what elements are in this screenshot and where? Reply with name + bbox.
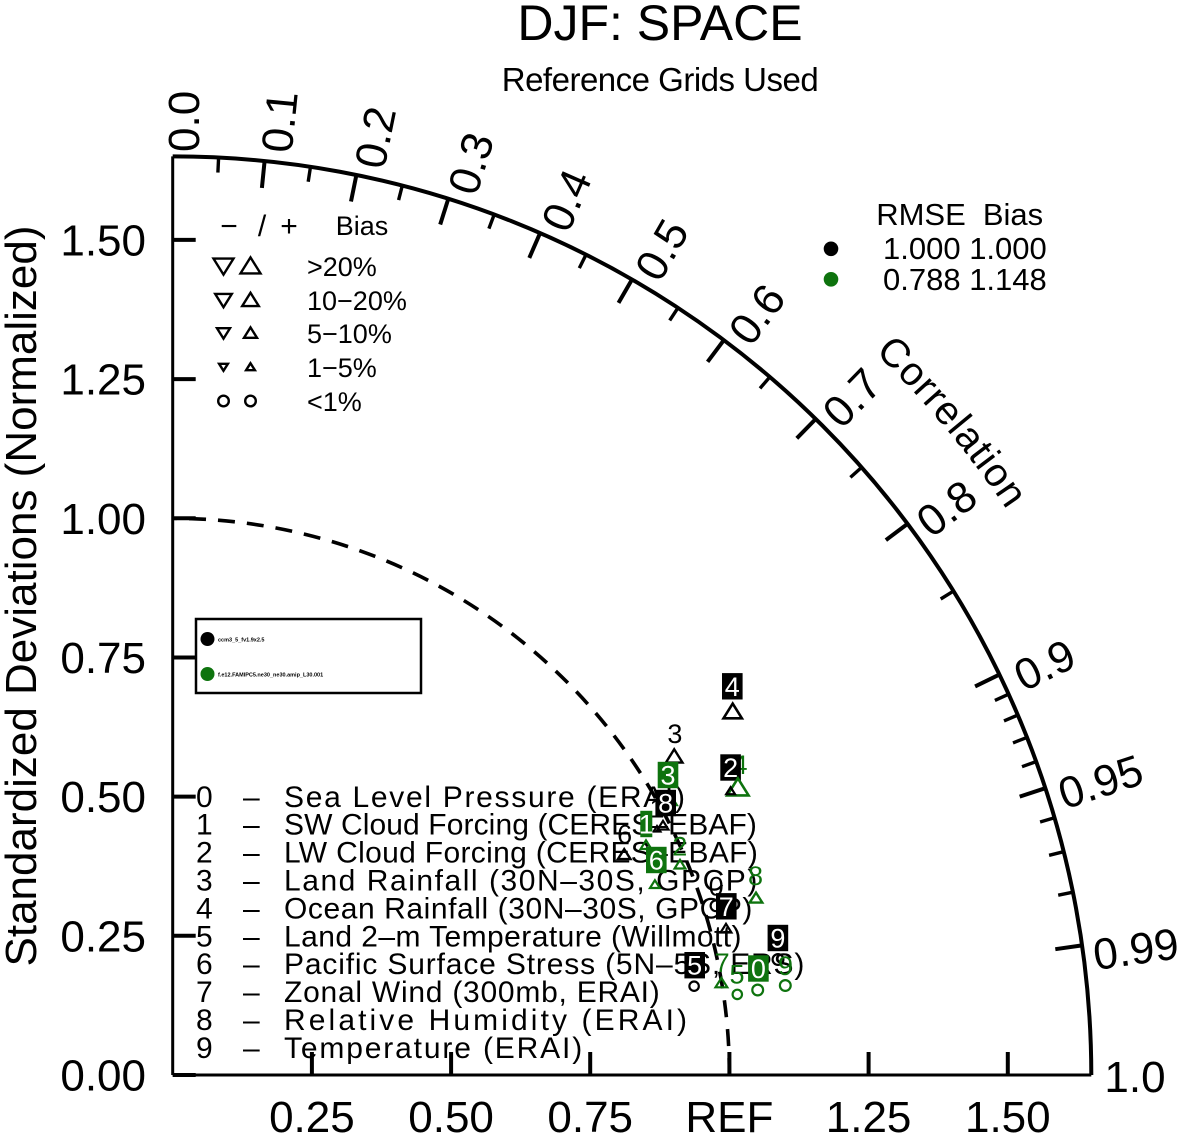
svg-text:>20%: >20% xyxy=(307,252,377,282)
svg-text:1.50: 1.50 xyxy=(965,1093,1051,1135)
svg-text:0.9: 0.9 xyxy=(1007,630,1083,701)
svg-text:Reference Grids Used: Reference Grids Used xyxy=(502,61,818,98)
svg-text:3: 3 xyxy=(660,761,675,791)
svg-text:9: 9 xyxy=(196,1032,213,1065)
svg-text:Standardized Deviations (Norma: Standardized Deviations (Normalized) xyxy=(0,226,46,967)
svg-text:0.0: 0.0 xyxy=(160,91,209,152)
svg-text:9: 9 xyxy=(778,951,793,981)
svg-text:5−10%: 5−10% xyxy=(307,319,392,349)
svg-text:–: – xyxy=(243,1032,260,1065)
svg-text:1.25: 1.25 xyxy=(826,1093,912,1135)
svg-text:Bias: Bias xyxy=(336,211,389,241)
svg-text:9: 9 xyxy=(770,924,785,954)
svg-text:1.000 1.000: 1.000 1.000 xyxy=(883,231,1047,266)
svg-text:2: 2 xyxy=(672,832,687,862)
svg-text:0.2: 0.2 xyxy=(346,103,406,173)
svg-text:Temperature (ERAI): Temperature (ERAI) xyxy=(284,1032,584,1065)
svg-text:3: 3 xyxy=(667,719,682,749)
svg-text:0: 0 xyxy=(751,954,766,984)
svg-text:0.00: 0.00 xyxy=(60,1052,146,1101)
svg-text:0.3: 0.3 xyxy=(439,127,504,200)
svg-text:2: 2 xyxy=(723,753,738,783)
svg-text:/: / xyxy=(258,210,267,243)
svg-text:4: 4 xyxy=(725,672,740,702)
svg-text:+: + xyxy=(280,210,298,243)
svg-text:0.99: 0.99 xyxy=(1090,919,1179,980)
svg-text:5: 5 xyxy=(687,951,702,981)
svg-text:1.0: 1.0 xyxy=(1104,1053,1165,1102)
svg-text:1.50: 1.50 xyxy=(60,216,146,265)
svg-text:<1%: <1% xyxy=(307,387,362,417)
svg-text:8: 8 xyxy=(748,861,763,891)
svg-text:0.7: 0.7 xyxy=(814,359,892,437)
svg-text:0.50: 0.50 xyxy=(60,773,146,822)
svg-text:7: 7 xyxy=(719,892,734,922)
svg-text:6: 6 xyxy=(617,820,632,850)
svg-text:0.95: 0.95 xyxy=(1052,746,1149,819)
svg-text:−: − xyxy=(220,210,238,243)
svg-text:0.1: 0.1 xyxy=(253,89,308,155)
svg-text:1−5%: 1−5% xyxy=(307,353,377,383)
svg-text:7: 7 xyxy=(715,948,730,978)
svg-text:0.5: 0.5 xyxy=(626,211,699,288)
svg-text:REF: REF xyxy=(685,1093,773,1135)
svg-text:1.25: 1.25 xyxy=(60,356,146,405)
svg-text:0.788 1.148: 0.788 1.148 xyxy=(883,262,1047,297)
svg-text:f.e12.FAMIPC5.ne30_ne30.amip_L: f.e12.FAMIPC5.ne30_ne30.amip_L30.001 xyxy=(218,673,323,679)
svg-text:8: 8 xyxy=(658,789,673,819)
svg-text:6: 6 xyxy=(649,846,664,876)
svg-text:RMSE: RMSE xyxy=(876,197,966,232)
svg-text:1.00: 1.00 xyxy=(60,495,146,544)
svg-text:0.4: 0.4 xyxy=(532,163,601,239)
svg-text:DJF: SPACE: DJF: SPACE xyxy=(517,0,802,51)
svg-text:10−20%: 10−20% xyxy=(307,286,407,316)
svg-text:Bias: Bias xyxy=(983,197,1043,232)
svg-text:ccm3_5_fv1.9x2.5: ccm3_5_fv1.9x2.5 xyxy=(218,638,264,644)
svg-text:0.75: 0.75 xyxy=(60,634,146,683)
svg-text:0.25: 0.25 xyxy=(269,1093,355,1135)
svg-text:0.50: 0.50 xyxy=(408,1093,494,1135)
svg-text:0.8: 0.8 xyxy=(908,471,986,547)
svg-text:0.25: 0.25 xyxy=(60,912,146,961)
svg-text:0.75: 0.75 xyxy=(547,1093,633,1135)
svg-text:5: 5 xyxy=(729,960,744,990)
svg-text:1: 1 xyxy=(639,810,654,840)
svg-text:0.6: 0.6 xyxy=(720,276,796,354)
